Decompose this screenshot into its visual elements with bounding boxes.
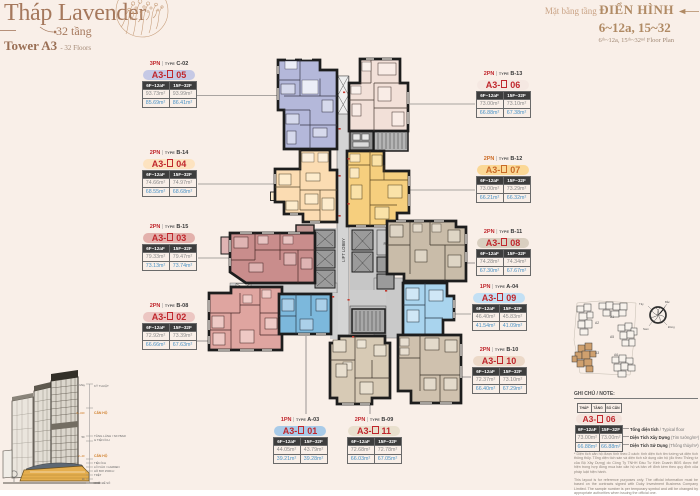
svg-text:Nam: Nam xyxy=(643,327,650,331)
svg-text:A1: A1 xyxy=(610,315,614,319)
svg-text:CĂN HỘ: CĂN HỘ xyxy=(94,453,108,458)
svg-text:Tây: Tây xyxy=(639,302,644,306)
svg-text:A6: A6 xyxy=(614,353,618,357)
svg-text:CĂN HỘ: CĂN HỘ xyxy=(94,410,108,415)
svg-text:Bắc: Bắc xyxy=(665,299,670,304)
svg-text:KHỐI ĐẾ SỐ: KHỐI ĐẾ SỐ xyxy=(94,480,111,485)
svg-text:2~4F: 2~4F xyxy=(78,454,85,458)
svg-text:Đông: Đông xyxy=(668,325,675,329)
svg-text:6~32F: 6~32F xyxy=(76,411,85,415)
svg-text:A5: A5 xyxy=(610,335,614,339)
svg-text:TRỆT: TRỆT xyxy=(94,472,102,477)
svg-text:& TIỆN ÍCH: & TIỆN ÍCH xyxy=(94,437,110,442)
svg-text:5F: 5F xyxy=(81,435,85,439)
svg-text:A2: A2 xyxy=(595,321,599,325)
svg-text:1F: 1F xyxy=(82,477,86,481)
svg-text:A3: A3 xyxy=(595,351,599,355)
svg-text:LIFT LOBBY: LIFT LOBBY xyxy=(341,238,346,262)
svg-text:KỸ THUẬT: KỸ THUẬT xyxy=(94,383,109,388)
svg-text:T.Máy: T.Máy xyxy=(77,383,86,387)
